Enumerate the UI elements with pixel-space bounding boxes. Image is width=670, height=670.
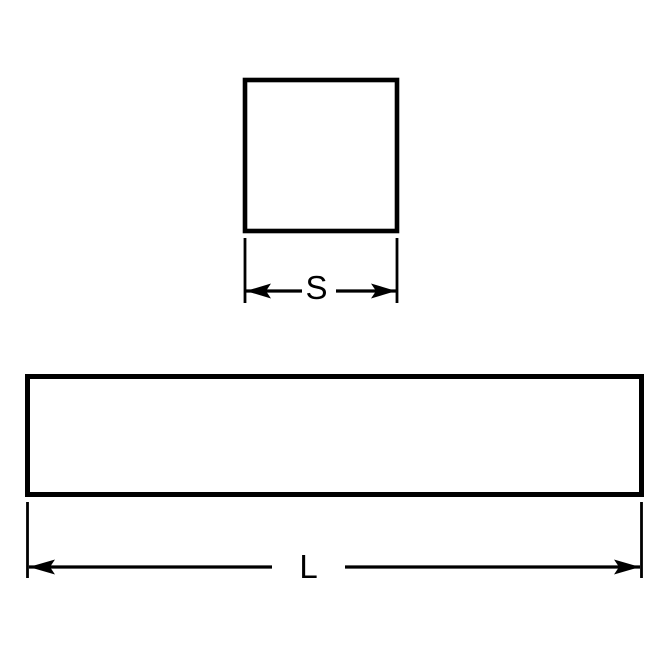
cross-section-square [245,80,397,231]
l-dimension-label: L [299,548,317,585]
drawing-canvas: S L [0,0,670,670]
keysteel-technical-diagram: S L [0,0,670,670]
bar-side-view-rectangle [28,377,642,495]
s-dimension-label: S [305,269,327,306]
